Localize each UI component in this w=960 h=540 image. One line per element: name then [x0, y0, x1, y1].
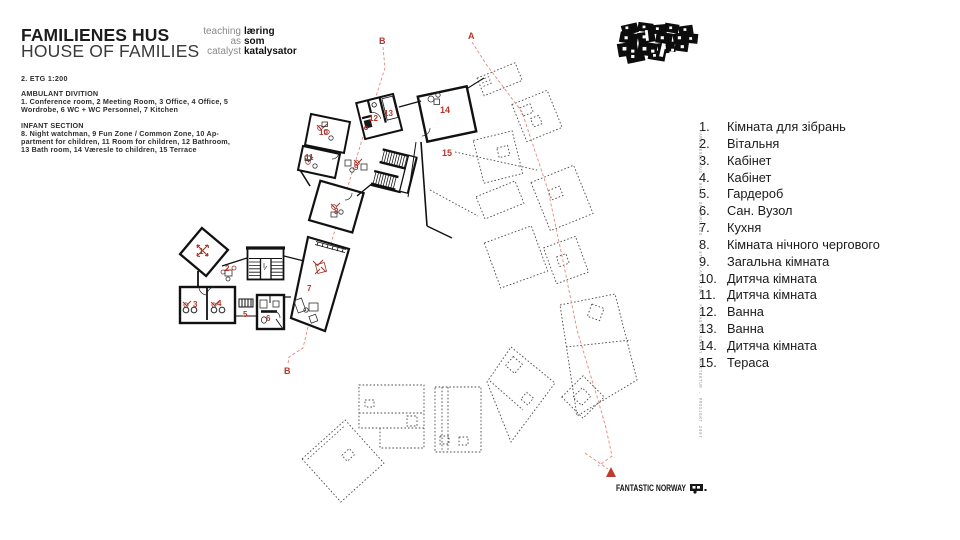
svg-text:12: 12 [369, 114, 378, 123]
svg-text:3: 3 [193, 300, 198, 309]
svg-text:9: 9 [354, 163, 359, 172]
svg-text:5: 5 [243, 310, 248, 319]
svg-text:11: 11 [305, 153, 314, 162]
svg-text:4: 4 [217, 299, 222, 308]
svg-text:8: 8 [334, 207, 339, 216]
svg-text:7: 7 [307, 284, 312, 293]
svg-text:2: 2 [225, 264, 230, 273]
svg-text:15: 15 [442, 148, 452, 158]
svg-text:B: B [379, 36, 386, 46]
svg-text:FAMILIENES HUS . HOUSE OF FAMI: FAMILIENES HUS . HOUSE OF FAMILIES . 2 E… [697, 130, 701, 438]
svg-text:B: B [284, 366, 291, 376]
svg-text:6: 6 [266, 314, 271, 323]
svg-text:A: A [468, 31, 475, 41]
svg-text:14: 14 [440, 105, 450, 115]
svg-text:1: 1 [199, 247, 204, 256]
svg-text:13: 13 [384, 109, 393, 118]
svg-text:10: 10 [319, 128, 328, 137]
